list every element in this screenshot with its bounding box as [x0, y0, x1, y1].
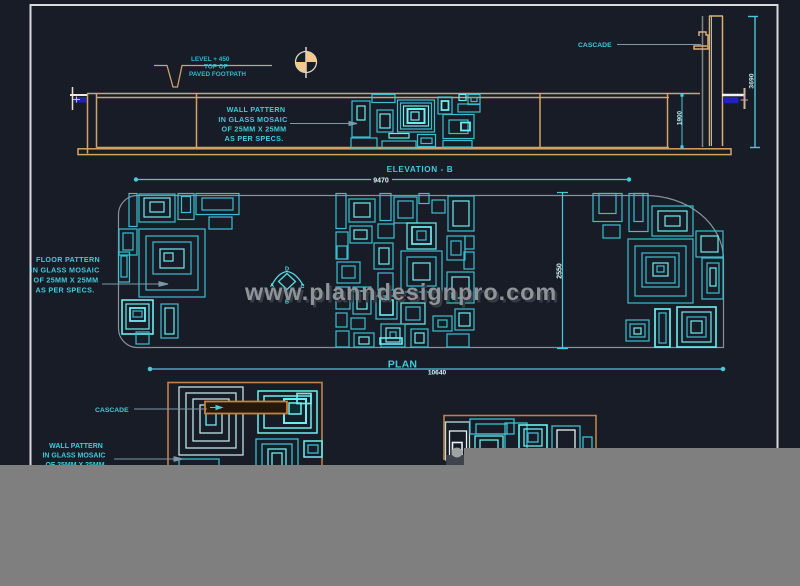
svg-text:WALL PATTERN: WALL PATTERN: [49, 443, 103, 450]
svg-text:LEVEL + 450: LEVEL + 450: [191, 56, 230, 63]
svg-text:9470: 9470: [373, 178, 389, 185]
svg-text:PAVED FOOTPATH: PAVED FOOTPATH: [189, 71, 246, 78]
svg-text:FLOOR PATTERN: FLOOR PATTERN: [36, 255, 100, 264]
svg-text:IN GLASS MOSAIC: IN GLASS MOSAIC: [218, 115, 287, 124]
svg-text:1900: 1900: [677, 110, 684, 125]
svg-text:WALL PATTERN: WALL PATTERN: [227, 105, 286, 114]
svg-text:D: D: [285, 267, 289, 273]
svg-text:2550: 2550: [557, 263, 564, 279]
svg-text:IN GLASS MOSAIC: IN GLASS MOSAIC: [30, 266, 99, 275]
svg-text:AS PER SPECS.: AS PER SPECS.: [224, 134, 283, 143]
svg-text:OF 25MM X 25MM: OF 25MM X 25MM: [222, 125, 287, 134]
svg-text:CASCADE: CASCADE: [95, 407, 129, 414]
svg-text:ELEVATION - B: ELEVATION - B: [387, 165, 454, 174]
svg-text:OF 25MM X 25MM: OF 25MM X 25MM: [34, 276, 99, 285]
svg-text:AS PER SPECS.: AS PER SPECS.: [35, 286, 94, 295]
svg-text:IN GLASS MOSAIC: IN GLASS MOSAIC: [42, 453, 105, 460]
svg-text:www.planndesignpro.com: www.planndesignpro.com: [244, 279, 557, 305]
svg-text:10640: 10640: [428, 370, 447, 377]
svg-text:TOP OF: TOP OF: [204, 64, 228, 71]
svg-text:3690: 3690: [749, 73, 756, 88]
svg-text:CASCADE: CASCADE: [578, 42, 612, 49]
